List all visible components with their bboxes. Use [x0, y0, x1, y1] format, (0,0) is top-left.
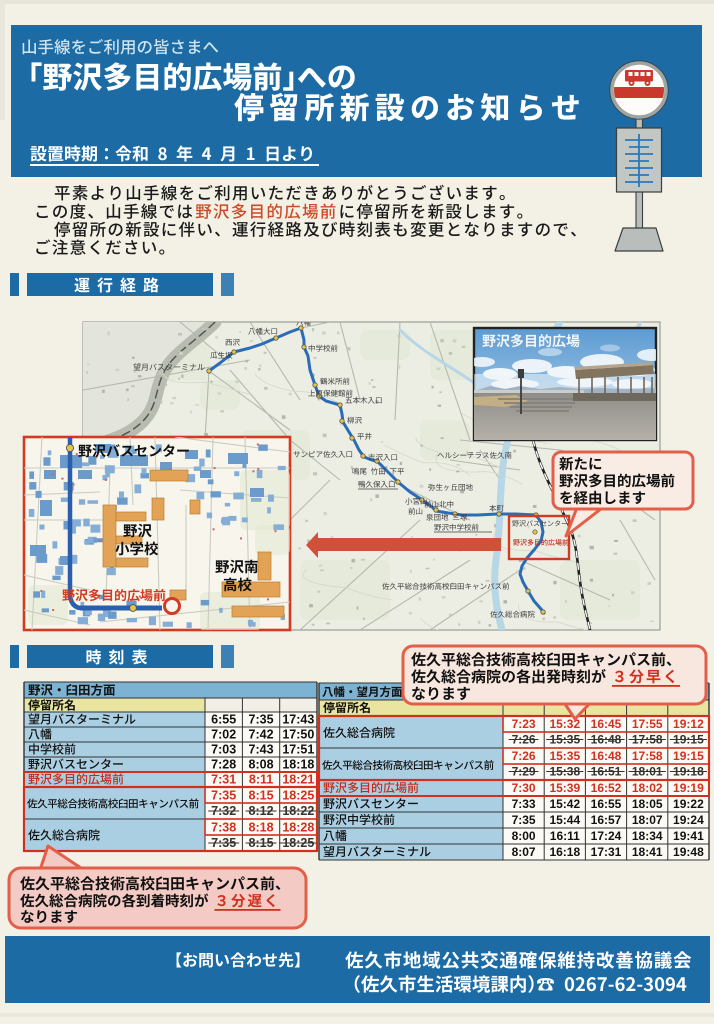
svg-text:15:44: 15:44 — [549, 813, 580, 827]
svg-text:7:35: 7:35 — [249, 713, 274, 727]
svg-text:7:42: 7:42 — [249, 728, 274, 742]
svg-text:16:55: 16:55 — [591, 797, 622, 811]
svg-text:7:30: 7:30 — [512, 781, 536, 795]
svg-text:7:35: 7:35 — [512, 813, 536, 827]
svg-text:7:03: 7:03 — [211, 743, 236, 757]
svg-text:15:39: 15:39 — [549, 781, 580, 795]
svg-text:8:18: 8:18 — [249, 821, 274, 835]
svg-text:7:33: 7:33 — [512, 797, 536, 811]
svg-text:19:48: 19:48 — [673, 845, 704, 859]
svg-text:18:02: 18:02 — [632, 781, 663, 795]
svg-text:18:18: 18:18 — [282, 758, 314, 772]
svg-text:7:23: 7:23 — [512, 717, 536, 731]
svg-text:18:07: 18:07 — [632, 813, 663, 827]
svg-text:8:11: 8:11 — [249, 773, 273, 787]
svg-text:16:48: 16:48 — [591, 749, 622, 763]
svg-text:17:55: 17:55 — [632, 717, 663, 731]
svg-text:7:28: 7:28 — [211, 758, 236, 772]
svg-text:7:26: 7:26 — [512, 749, 536, 763]
svg-text:19:19: 19:19 — [673, 781, 704, 795]
svg-text:7:38: 7:38 — [211, 821, 236, 835]
svg-text:19:22: 19:22 — [673, 797, 704, 811]
svg-text:15:42: 15:42 — [549, 797, 580, 811]
svg-text:8:08: 8:08 — [249, 758, 274, 772]
svg-text:16:45: 16:45 — [591, 717, 622, 731]
svg-text:16:57: 16:57 — [591, 813, 622, 827]
svg-text:18:28: 18:28 — [282, 821, 314, 835]
svg-text:18:41: 18:41 — [632, 845, 663, 859]
svg-text:19:12: 19:12 — [673, 717, 704, 731]
svg-text:17:50: 17:50 — [282, 728, 314, 742]
svg-text:7:43: 7:43 — [249, 743, 274, 757]
svg-text:18:21: 18:21 — [282, 773, 314, 787]
svg-text:7:31: 7:31 — [211, 773, 236, 787]
svg-text:19:24: 19:24 — [673, 813, 704, 827]
svg-text:8:15: 8:15 — [249, 789, 274, 803]
svg-text:8:00: 8:00 — [512, 829, 536, 843]
svg-text:16:11: 16:11 — [550, 829, 580, 843]
svg-text:19:15: 19:15 — [673, 749, 704, 763]
svg-text:17:58: 17:58 — [632, 749, 663, 763]
svg-text:18:34: 18:34 — [632, 829, 663, 843]
svg-text:18:05: 18:05 — [632, 797, 663, 811]
svg-text:17:31: 17:31 — [591, 845, 622, 859]
svg-text:17:51: 17:51 — [282, 743, 314, 757]
svg-text:6:55: 6:55 — [211, 713, 236, 727]
svg-text:15:35: 15:35 — [549, 749, 580, 763]
svg-text:16:18: 16:18 — [549, 845, 580, 859]
svg-text:7:02: 7:02 — [211, 728, 236, 742]
svg-text:8:07: 8:07 — [512, 845, 536, 859]
svg-text:16:52: 16:52 — [591, 781, 622, 795]
svg-text:18:25: 18:25 — [282, 789, 314, 803]
svg-text:7:35: 7:35 — [211, 789, 236, 803]
svg-text:19:41: 19:41 — [673, 829, 704, 843]
svg-text:17:43: 17:43 — [282, 713, 314, 727]
svg-text:17:24: 17:24 — [591, 829, 622, 843]
